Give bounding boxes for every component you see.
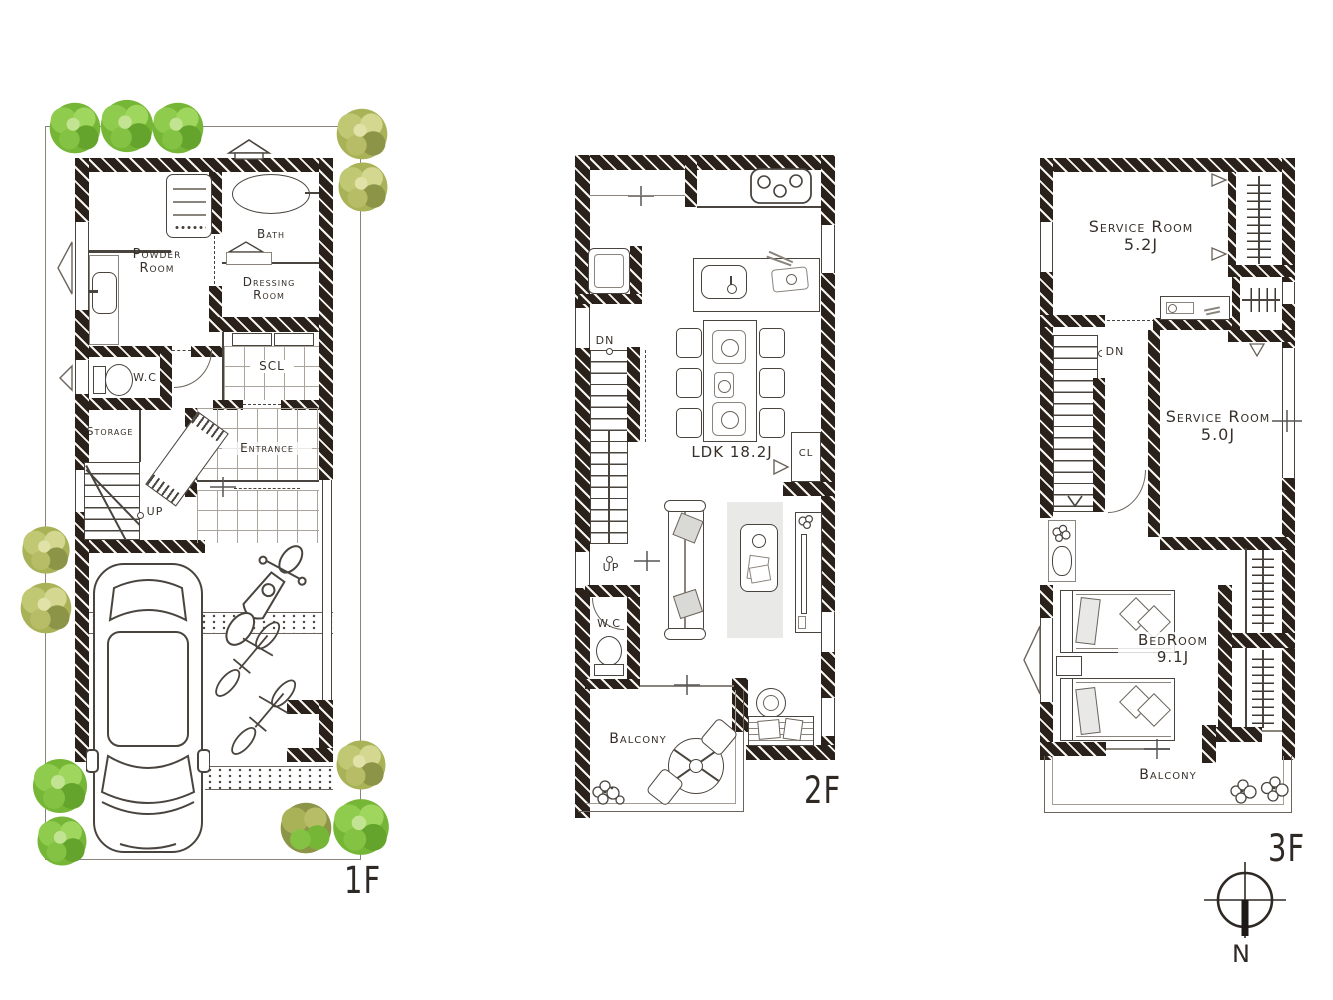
door-swing-icon [772,458,790,476]
tv [801,534,807,614]
wall [627,347,640,442]
service-room-2-label: Service Room 5.0J [1152,408,1284,443]
wall [585,679,640,689]
wall [1160,537,1295,550]
stairs-3f [1053,335,1098,512]
wall [585,585,640,597]
dn-label: DN [592,335,618,347]
wall [575,348,590,552]
bedroom-size: 9.1J [1118,649,1228,666]
compass-north-label: N [1232,940,1250,968]
nightstand [1056,656,1082,676]
dining-chair [676,328,702,358]
toilet-bowl [596,636,622,666]
wall [1232,633,1295,648]
cup [752,534,766,548]
ldk-label: LDK 18.2J [688,444,776,461]
balcony-label: Balcony [600,732,676,747]
wall [1228,330,1295,342]
dn-label: DN [1102,346,1128,358]
service-room-1-name: Service Room [1075,218,1207,236]
wall [1040,158,1295,172]
wall [630,246,642,296]
room-line [590,195,685,196]
wall [1232,277,1240,330]
desk-item-dot [1168,304,1177,313]
door-swing-icon [1210,246,1228,262]
wall [1282,478,1295,760]
floor-3f: Service Room 5.2J DN [0,0,433,1000]
faucet [727,284,737,294]
wall [1040,272,1053,518]
vanity-sink [1052,546,1072,576]
floor-plan-canvas: Powder Room Bath Dressing Room W.C SCL S… [0,0,1333,1000]
window [821,612,835,652]
plate [721,411,739,429]
service-room-2-size: 5.0J [1152,426,1284,444]
toilet-tank [594,664,624,676]
dining-chair [676,368,702,398]
sofa-armrest [664,500,706,512]
service-room-2-name: Service Room [1152,408,1284,426]
wall [746,745,835,760]
bench-cushion [783,718,804,741]
compass-icon [1200,856,1290,946]
window-swing-icon [1022,624,1042,696]
up-label: UP [598,562,624,574]
balcony-label: Balcony [1128,768,1208,783]
wall [821,155,835,225]
window [1040,222,1053,272]
wall [1040,158,1053,222]
window [1282,282,1295,304]
dim-cross [634,548,660,574]
sofa-armrest [664,628,706,640]
service-room-1-size: 5.2J [1075,236,1207,254]
wall [821,652,835,698]
bed-headboard [1060,678,1073,741]
stair-marker [606,348,613,355]
wall [1093,378,1105,512]
bedroom-name: BedRoom [1118,632,1228,649]
flowers-icon [1050,523,1074,543]
flowers-icon [1258,774,1292,806]
wall [627,597,640,679]
door-dashed [1107,320,1155,322]
stair-arrow-icon [1066,494,1084,508]
window [821,698,835,736]
wall [1216,727,1262,742]
papers [749,564,771,583]
compass: N [1200,856,1290,976]
wall [783,482,835,496]
counter-line [697,206,821,208]
bench-cushion [757,719,781,740]
faucet-line [730,276,732,285]
stool-inner [763,695,779,711]
stove [750,168,812,204]
egg [786,274,797,285]
dining-chair [759,328,785,358]
plant-icon [796,513,816,531]
wall [821,273,835,612]
flowers-icon [1228,778,1262,806]
plate [721,339,739,357]
dining-chair [676,408,702,438]
closet-rod [1262,650,1264,728]
dining-chair [759,368,785,398]
wall [1228,265,1295,277]
wall [1282,158,1295,282]
window [575,552,590,588]
bed-headboard [1060,590,1073,653]
cl-label: CL [794,448,818,459]
wall [1040,742,1106,756]
kitchen-sink [701,265,747,299]
wall [1040,585,1053,618]
wall [578,294,642,304]
window [575,308,590,348]
service-room-1-label: Service Room 5.2J [1075,218,1207,253]
wall [685,155,697,207]
dining-chair [759,408,785,438]
refrigerator-inner [594,254,624,288]
door-swing-icon [1248,342,1266,358]
flowers-icon [590,778,628,808]
closet-rod [1258,176,1260,264]
bedroom-label: BedRoom 9.1J [1118,632,1228,665]
stair-rail [608,430,610,544]
window [821,225,835,273]
bed-inner-line [1076,594,1171,595]
closet-rod [1242,299,1280,301]
closet-rod [1262,550,1264,632]
wc-label: W.C [592,618,626,630]
wall [1040,315,1105,327]
balcony-table-center [689,759,703,773]
wall [1218,585,1232,730]
bed-inner-line [1076,682,1171,683]
floor-tag-2f: 2F [804,768,841,812]
small-item [798,616,806,629]
bowl [718,380,731,393]
door-swing-icon [1210,172,1228,188]
stair-dashed [645,350,647,442]
door-arc [1108,470,1146,513]
wall [1228,172,1236,265]
